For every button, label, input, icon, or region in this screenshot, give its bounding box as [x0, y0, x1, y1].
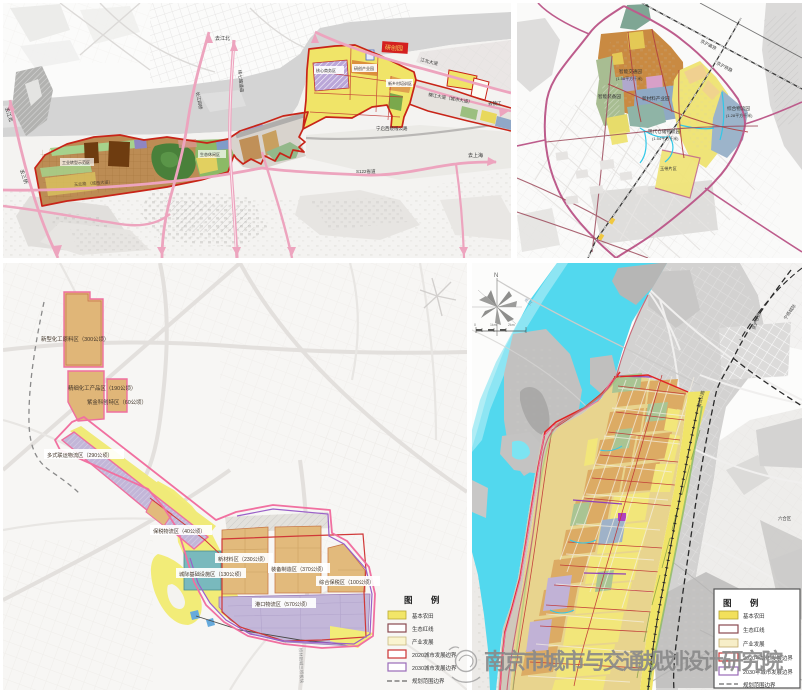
- svg-text:生态红线: 生态红线: [743, 626, 765, 634]
- svg-text:(1.58平方千米): (1.58平方千米): [616, 75, 643, 81]
- svg-text:港口物流区（570公顷）: 港口物流区（570公顷）: [255, 600, 310, 608]
- svg-text:核心商务区: 核心商务区: [316, 67, 336, 73]
- svg-text:基本农田: 基本农田: [412, 612, 434, 620]
- svg-text:新型化工原料区（300公顷）: 新型化工原料区（300公顷）: [41, 335, 109, 343]
- svg-text:去镇江: 去镇江: [488, 100, 502, 107]
- svg-text:研创产业园: 研创产业园: [354, 65, 374, 71]
- svg-text:基本农田: 基本农田: [743, 612, 765, 620]
- svg-text:规划范围边界: 规划范围边界: [743, 681, 776, 689]
- svg-text:(1.54平方千米): (1.54平方千米): [652, 135, 679, 141]
- svg-text:新乡村培训区: 新乡村培训区: [388, 80, 412, 86]
- svg-text:规划范围边界: 规划范围边界: [412, 677, 445, 685]
- svg-text:城际基础设施区（130公顷）: 城际基础设施区（130公顷）: [179, 570, 245, 578]
- svg-text:2030城市发展边界: 2030城市发展边界: [412, 664, 457, 672]
- svg-text:综合物流园: 综合物流园: [727, 105, 750, 112]
- svg-text:去上海: 去上海: [468, 152, 483, 159]
- svg-text:图 例: 图 例: [404, 595, 447, 605]
- svg-text:1km: 1km: [490, 323, 497, 327]
- svg-text:图 例: 图 例: [723, 598, 766, 608]
- svg-text:玉带片区: 玉带片区: [660, 165, 677, 172]
- svg-text:南京市城市与交通规划设计研究院: 南京市城市与交通规划设计研究院: [484, 649, 783, 674]
- svg-text:紫金科创特区（60公顷）: 紫金科创特区（60公顷）: [87, 398, 147, 406]
- svg-text:保税物流区（40公顷）: 保税物流区（40公顷）: [153, 527, 205, 535]
- svg-text:生态休闲区: 生态休闲区: [200, 151, 220, 157]
- svg-text:宁启西绕线公路: 宁启西绕线公路: [376, 125, 408, 132]
- svg-text:综合保税区（100公顷）: 综合保税区（100公顷）: [319, 578, 374, 586]
- svg-text:精细化工产品区（190公顷）: 精细化工产品区（190公顷）: [68, 384, 136, 392]
- svg-text:S122省道: S122省道: [356, 168, 376, 175]
- svg-text:新材料产业园: 新材料产业园: [642, 95, 670, 102]
- svg-text:生态红线: 生态红线: [412, 625, 434, 633]
- svg-text:六合区: 六合区: [778, 515, 792, 522]
- svg-text:多式联运物流区（290公顷）: 多式联运物流区（290公顷）: [47, 451, 113, 459]
- svg-text:智能装备园: 智能装备园: [598, 93, 621, 100]
- svg-text:产业发展: 产业发展: [743, 640, 765, 648]
- svg-text:0: 0: [474, 323, 476, 327]
- svg-text:装备制造区（370公顷）: 装备制造区（370公顷）: [271, 565, 326, 573]
- svg-text:现代仓储物流园: 现代仓储物流园: [648, 128, 681, 135]
- svg-text:智能交通园: 智能交通园: [619, 68, 642, 75]
- svg-text:2020城市发展边界: 2020城市发展边界: [412, 651, 457, 659]
- svg-text:2km: 2km: [508, 323, 515, 327]
- svg-text:去江北: 去江北: [215, 35, 230, 42]
- svg-text:产业发展: 产业发展: [412, 638, 434, 646]
- svg-text:(1.28平方千米): (1.28平方千米): [726, 112, 753, 118]
- svg-text:工业转型示范区: 工业转型示范区: [62, 159, 90, 165]
- svg-text:N: N: [494, 273, 498, 279]
- svg-text:新材料区（230公顷）: 新材料区（230公顷）: [218, 555, 268, 563]
